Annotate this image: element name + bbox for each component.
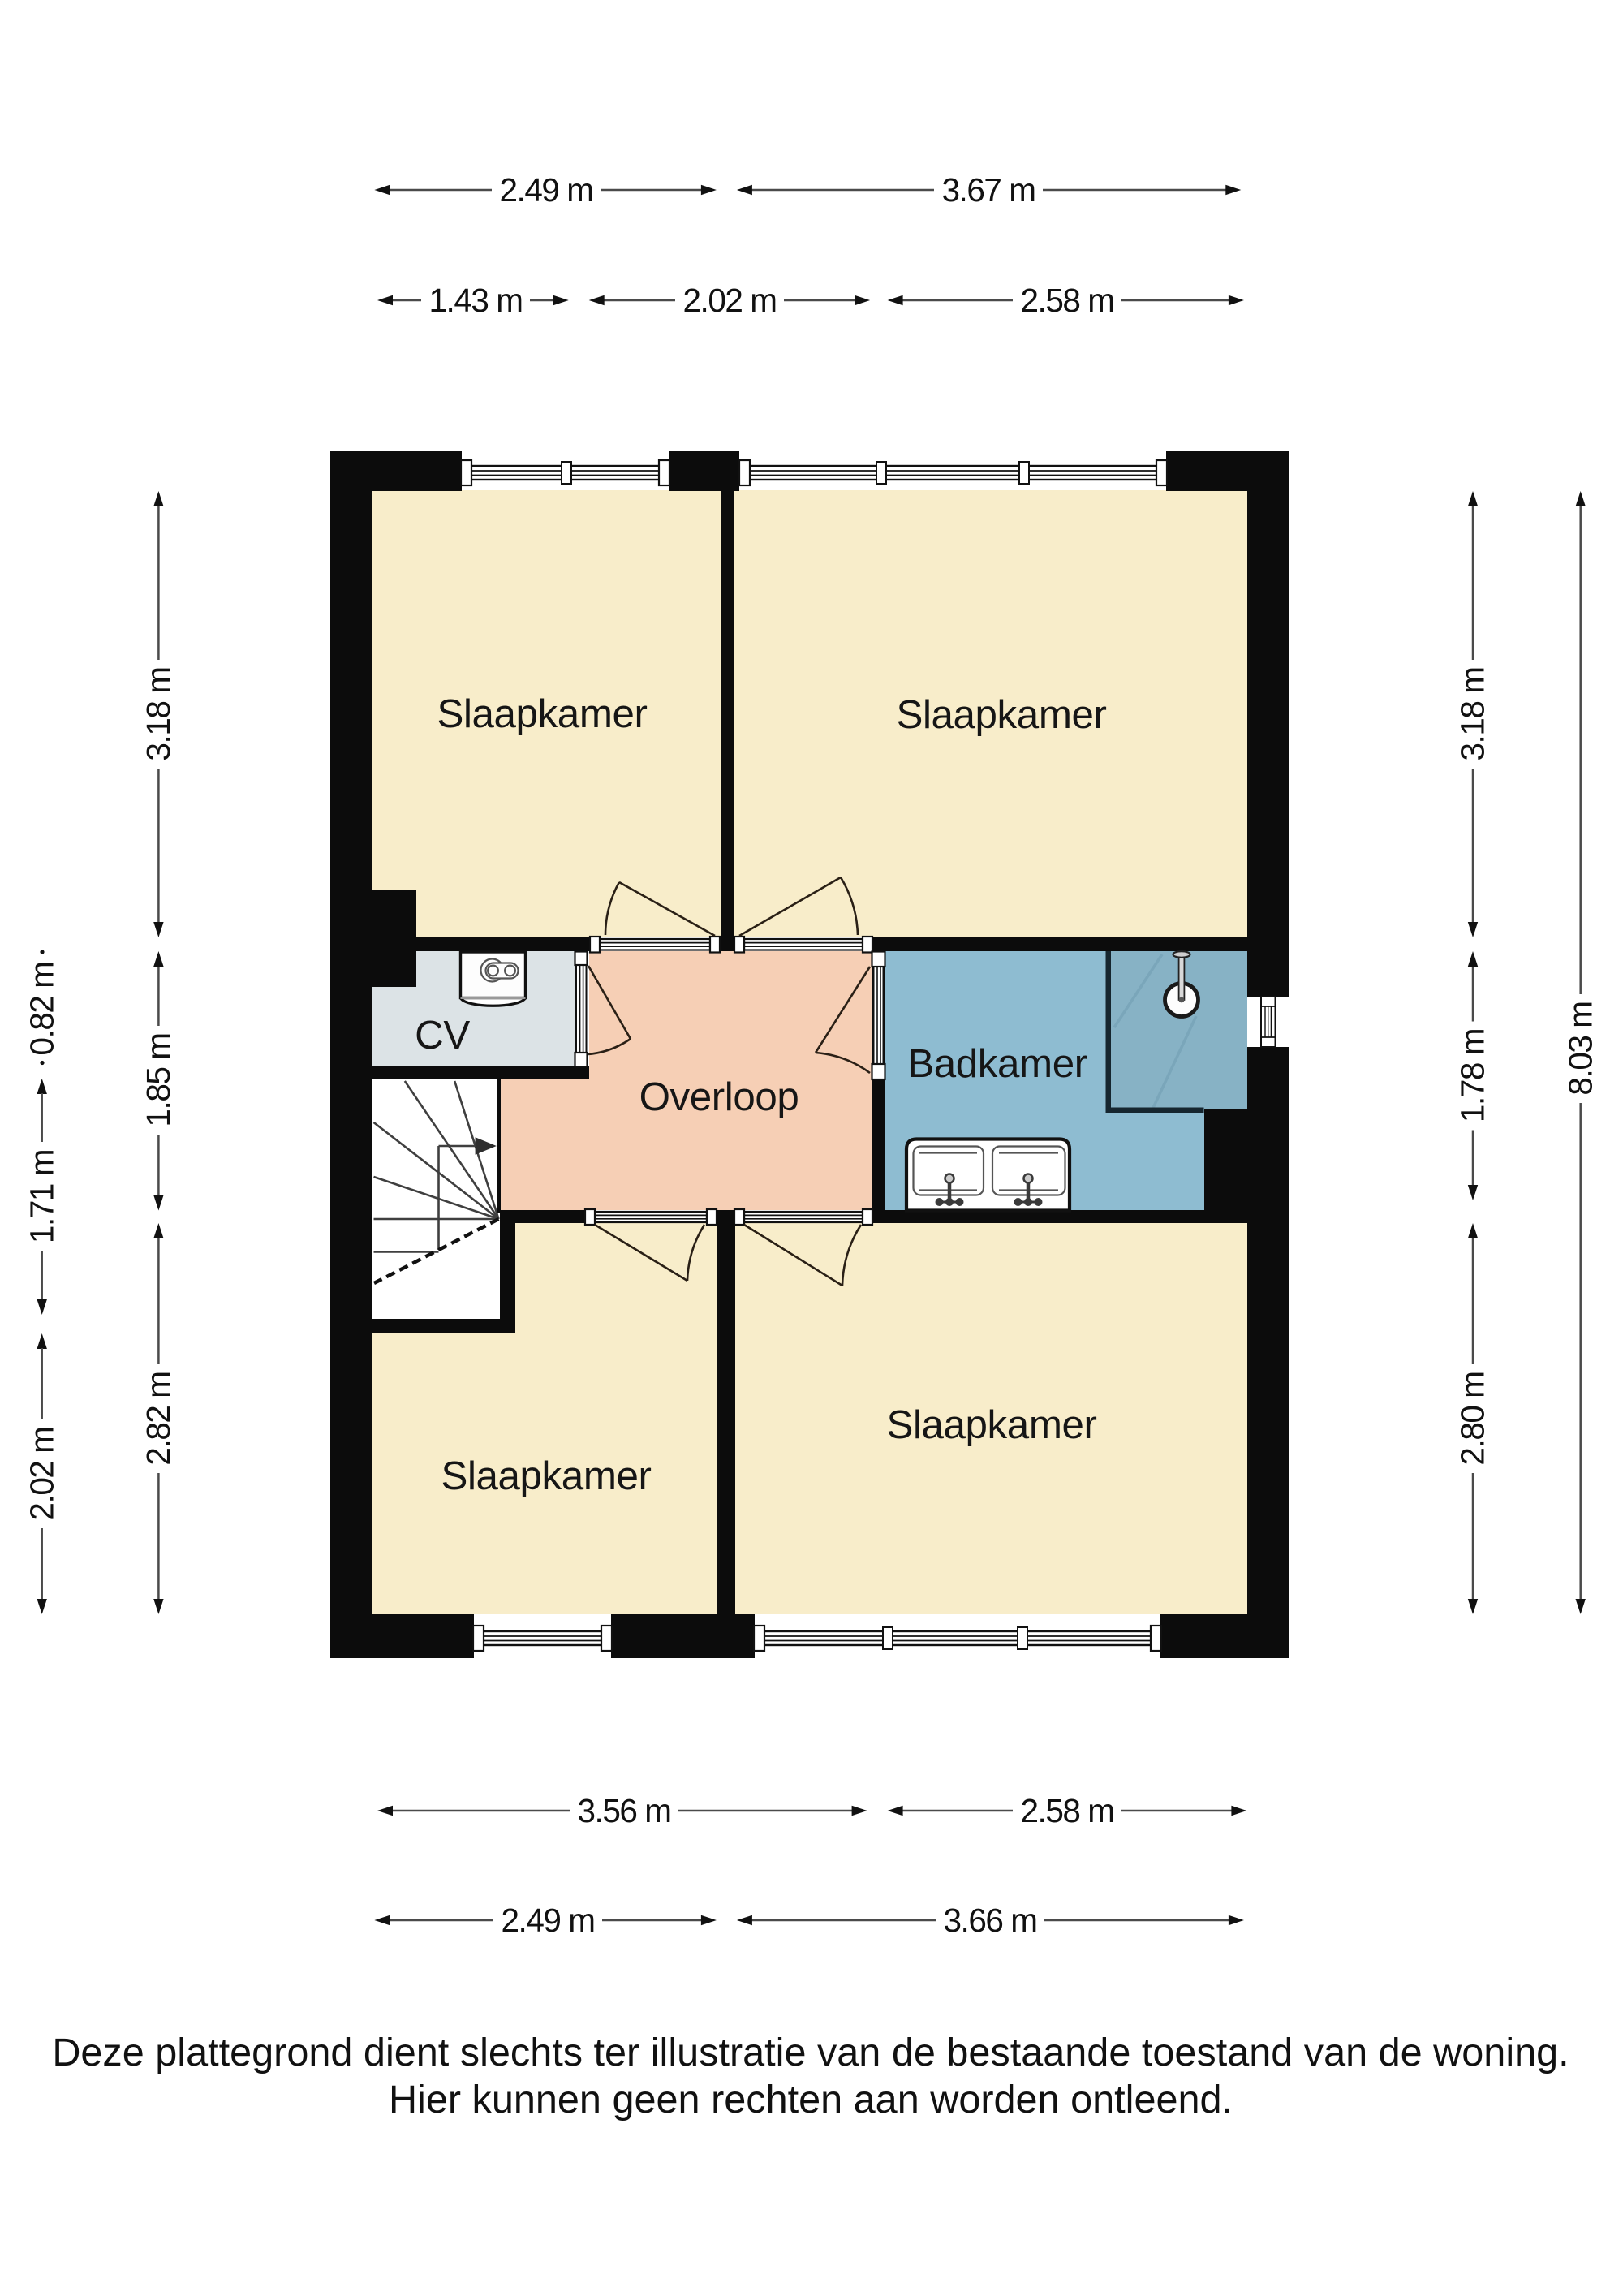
svg-text:Slaapkamer: Slaapkamer [896,692,1106,737]
svg-text:2.02 m: 2.02 m [23,1427,60,1520]
svg-text:Overloop: Overloop [639,1075,799,1119]
svg-text:2.58 m: 2.58 m [1020,1792,1113,1829]
svg-text:Hier kunnen geen rechten aan w: Hier kunnen geen rechten aan worden ontl… [389,2078,1233,2122]
svg-text:Slaapkamer: Slaapkamer [441,1454,651,1498]
svg-text:8.03 m: 8.03 m [1561,1002,1599,1095]
svg-text:1.71 m: 1.71 m [23,1150,60,1243]
svg-text:Badkamer: Badkamer [907,1041,1087,1086]
svg-text:3.18 m: 3.18 m [140,667,177,760]
svg-text:2.49 m: 2.49 m [499,171,592,209]
svg-text:Slaapkamer: Slaapkamer [437,691,647,736]
svg-text:3.56 m: 3.56 m [577,1792,670,1829]
svg-text:2.82 m: 2.82 m [140,1372,177,1465]
svg-text:Deze plattegrond dient slechts: Deze plattegrond dient slechts ter illus… [52,2031,1569,2074]
svg-text:2.58 m: 2.58 m [1020,282,1113,319]
svg-text:2.02 m: 2.02 m [682,282,776,319]
svg-text:0.82 m: 0.82 m [23,962,60,1055]
svg-text:2.80 m: 2.80 m [1454,1372,1492,1465]
svg-text:1.78 m: 1.78 m [1454,1029,1492,1122]
svg-text:2.49 m: 2.49 m [501,1902,594,1939]
svg-text:3.66 m: 3.66 m [943,1902,1036,1939]
svg-text:CV: CV [415,1013,470,1058]
svg-text:1.85 m: 1.85 m [140,1033,177,1126]
svg-text:Slaapkamer: Slaapkamer [886,1402,1096,1447]
svg-text:3.67 m: 3.67 m [941,171,1035,209]
svg-text:3.18 m: 3.18 m [1454,667,1492,760]
svg-text:1.43 m: 1.43 m [428,282,522,319]
